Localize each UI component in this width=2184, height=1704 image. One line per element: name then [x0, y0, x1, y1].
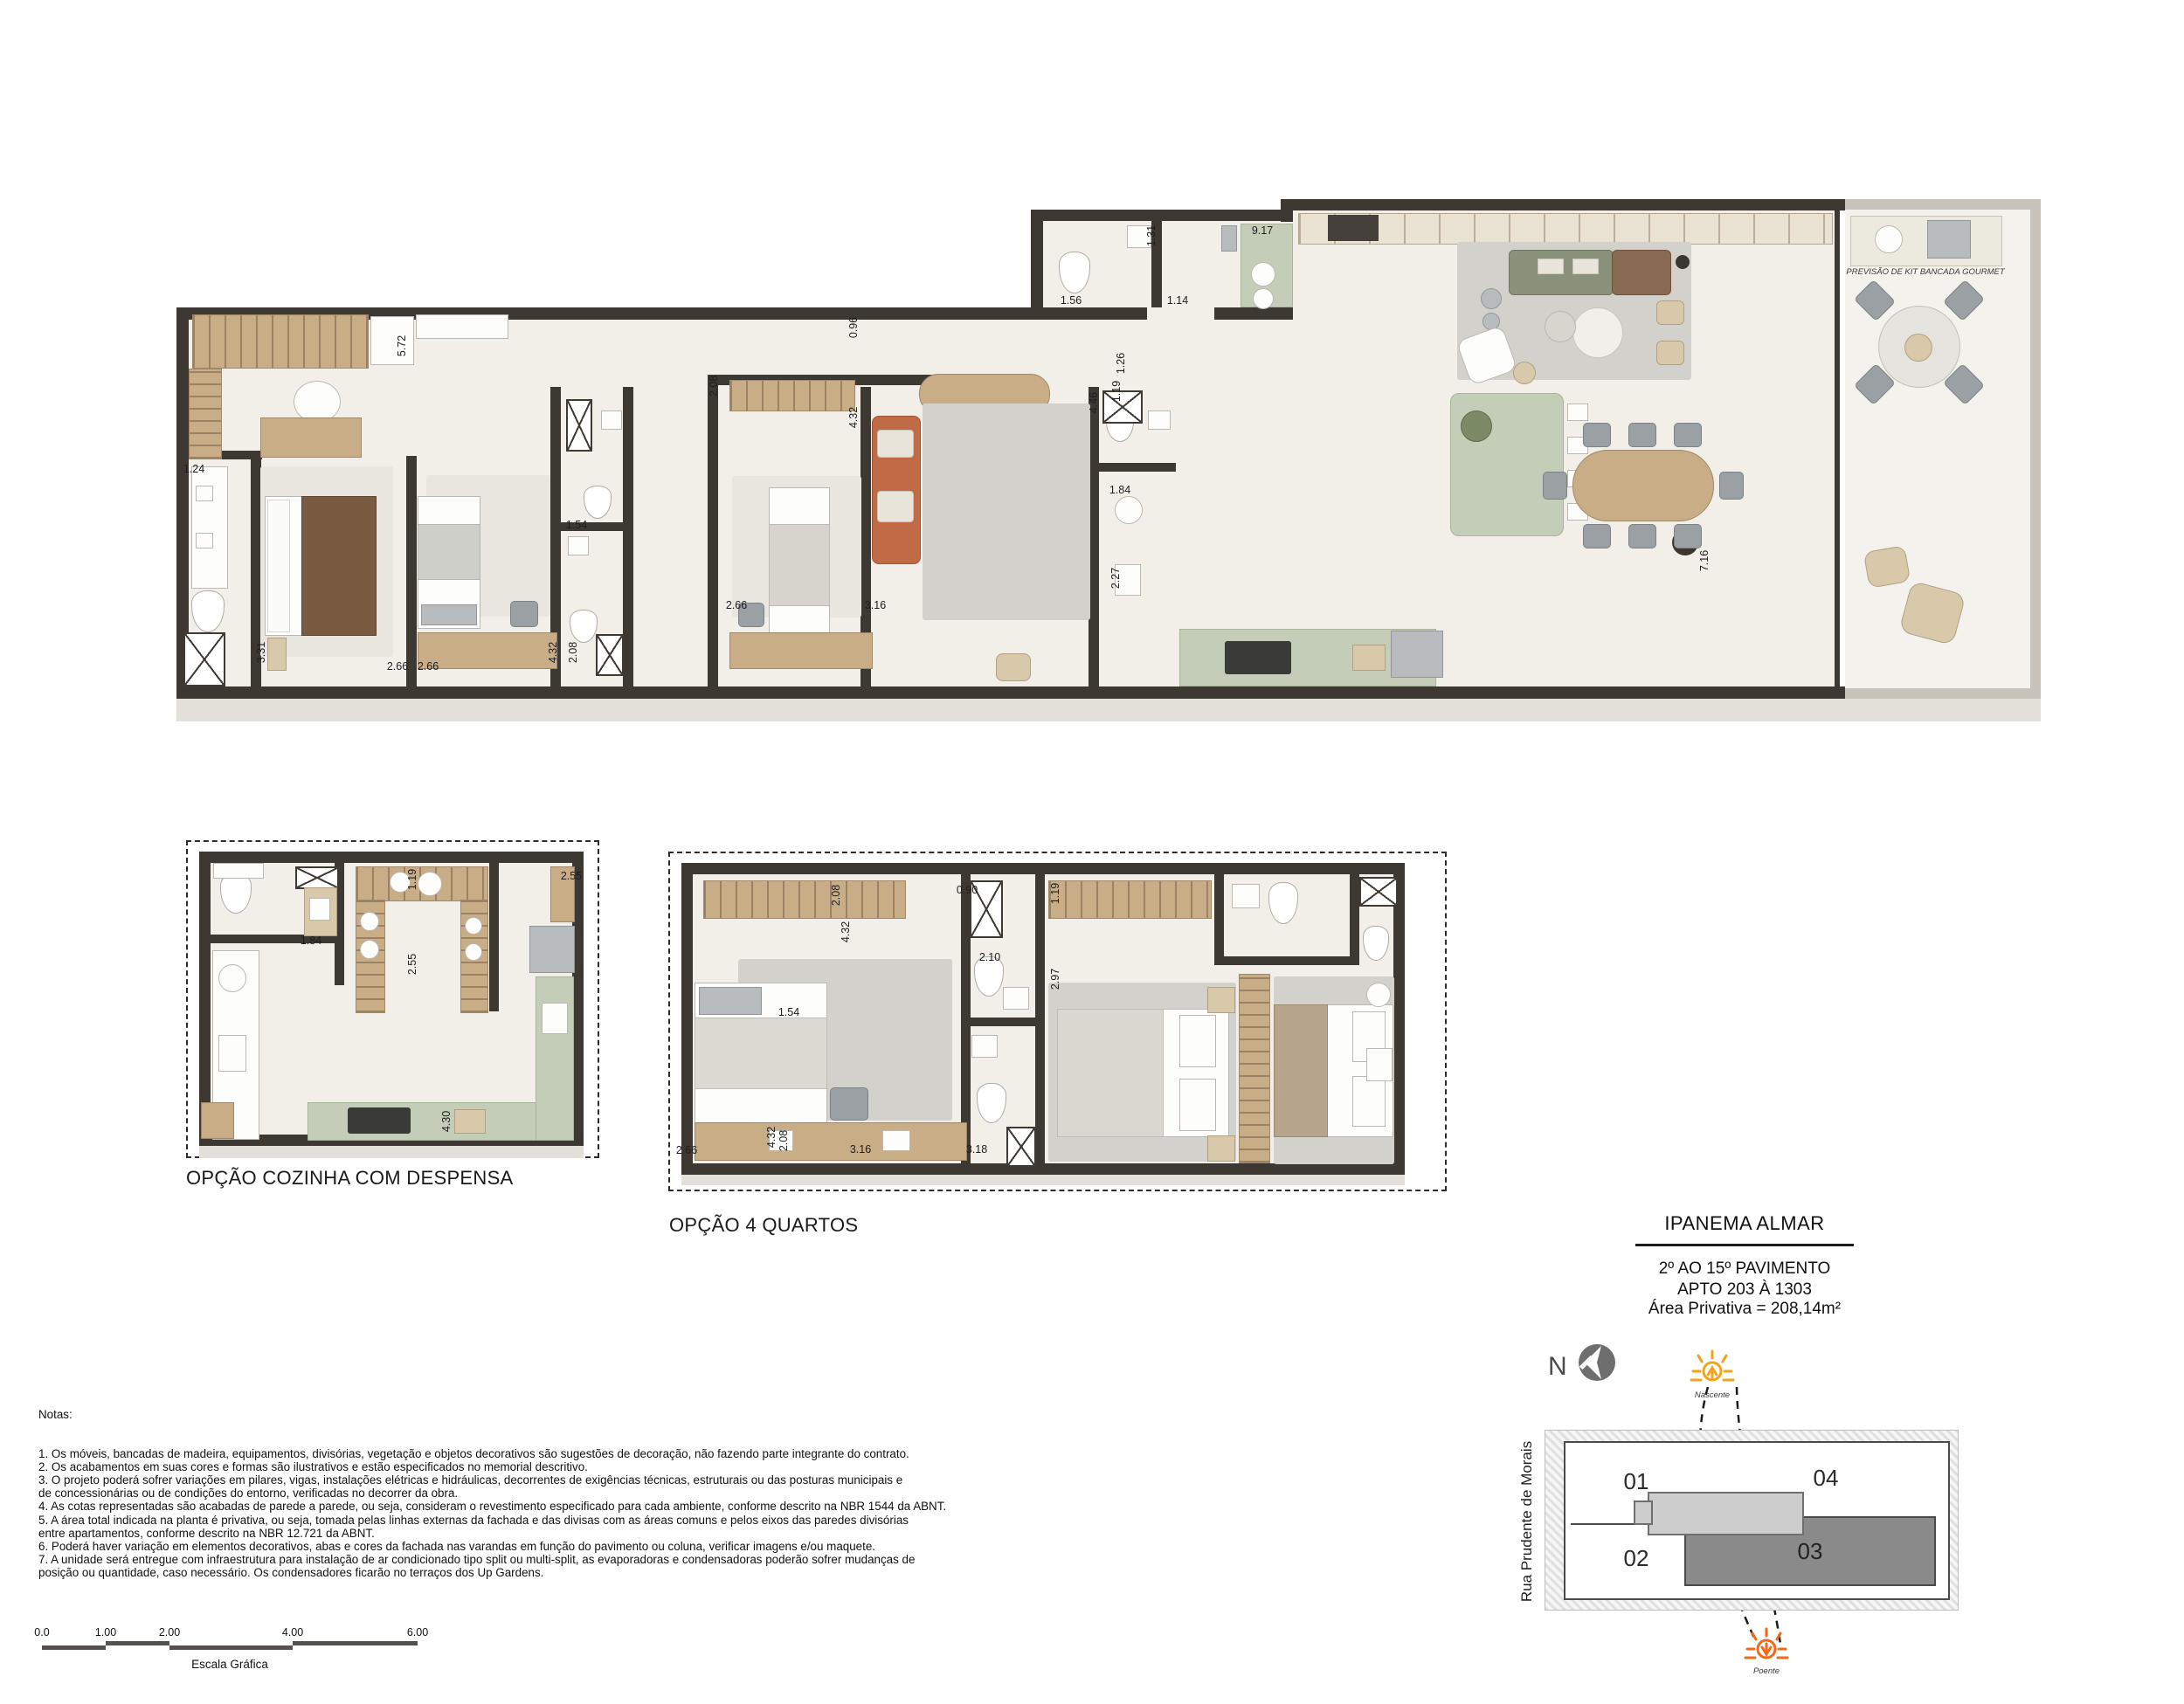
- sink: [309, 898, 330, 921]
- note-line: posição ou quantidade, caso necessário. …: [38, 1566, 946, 1579]
- dresser: [260, 417, 362, 458]
- street-label: Rua Prudente de Morais: [1518, 1441, 1536, 1602]
- scale-tick: 1.00: [95, 1626, 116, 1638]
- dining-chair: [1719, 472, 1744, 500]
- boiler: [1366, 983, 1391, 1007]
- dimension-label: 1.84: [1109, 485, 1130, 496]
- wall-suite3-left: [708, 375, 718, 686]
- note-line: 4. As cotas representadas são acabadas d…: [38, 1500, 946, 1513]
- terrace-table-tray: [1904, 334, 1932, 362]
- washer: [218, 964, 246, 992]
- title-underline: [1635, 1244, 1854, 1246]
- dimension-label: 2.08: [568, 642, 579, 663]
- wall-living-terrace-divider: [1835, 210, 1840, 686]
- plant: [1461, 410, 1492, 442]
- sofa-pillow: [877, 430, 914, 458]
- wall-step-service: [1031, 210, 1043, 320]
- cooktop: [1225, 641, 1291, 674]
- dimension-label: 9.17: [1252, 225, 1273, 237]
- title-area: Área Privativa = 208,14m²: [1648, 1300, 1841, 1319]
- rug: [923, 404, 1090, 620]
- bed-blanket: [695, 1018, 827, 1089]
- note-line: 2. Os acabamentos em suas cores e formas…: [38, 1460, 946, 1473]
- armchair: [830, 1087, 868, 1121]
- unit-03-label: 03: [1798, 1538, 1823, 1565]
- shower: [596, 634, 624, 676]
- scale-bar-segment: [169, 1645, 293, 1650]
- desk: [695, 1122, 967, 1161]
- dimension-label: 1.14: [1167, 295, 1188, 307]
- note-line: 1. Os móveis, bancadas de madeira, equip…: [38, 1447, 946, 1460]
- plan-ground-shadow: [681, 1175, 1405, 1185]
- sink: [568, 536, 589, 555]
- washer: [1115, 496, 1143, 524]
- wall: [1214, 874, 1224, 965]
- cabinet: [201, 1102, 234, 1139]
- dimension-label: 2.08: [778, 1130, 790, 1151]
- wardrobe: [189, 369, 222, 459]
- dimension-label: 2.10: [979, 952, 1000, 963]
- dimension-label: 2.27: [1110, 568, 1122, 589]
- scale-bar-segment: [293, 1641, 418, 1645]
- key-plan-core: [1648, 1492, 1804, 1535]
- north-label: N: [1548, 1352, 1567, 1382]
- wall: [1350, 874, 1359, 965]
- dining-chair: [1583, 524, 1611, 548]
- sink: [971, 1035, 998, 1058]
- jar: [418, 872, 442, 896]
- dimension-label: 1.31: [1146, 225, 1158, 246]
- dimension-label: 7.16: [1699, 550, 1711, 571]
- sunset-label: Poente: [1753, 1666, 1780, 1676]
- cooktop: [348, 1107, 411, 1134]
- closet: [729, 380, 855, 411]
- kitchen-counter: [536, 976, 574, 1141]
- scale-bar-segment: [42, 1645, 106, 1650]
- dimension-label: 2.97: [1050, 969, 1061, 990]
- bed-blanket: [418, 524, 480, 580]
- scale-tick: 6.00: [407, 1626, 428, 1638]
- terrace-wall-bottom: [1845, 688, 2041, 699]
- terrace-wall-top: [1845, 199, 2041, 210]
- sink: [1003, 987, 1029, 1010]
- dimension-label: 2.66: [387, 661, 408, 673]
- window-box: [213, 863, 264, 879]
- floor-lamp: [1676, 255, 1690, 269]
- vanity-double: [191, 466, 228, 589]
- grill: [1927, 220, 1971, 259]
- dimension-label: 2.66: [726, 600, 747, 611]
- note-line: de concessionárias ou de condições do en…: [38, 1487, 946, 1500]
- sofa-brown-chaise: [1612, 250, 1671, 295]
- dimension-label: 2.66: [418, 661, 439, 673]
- wall: [961, 1018, 1045, 1026]
- dimension-label: 0.90: [957, 885, 978, 896]
- sink: [601, 410, 622, 430]
- side-table: [1481, 288, 1502, 309]
- dimension-label: 4.30: [441, 1111, 453, 1132]
- cooktop-burner: [1251, 262, 1275, 286]
- scale-tick: 0.0: [34, 1626, 49, 1638]
- sink: [1148, 410, 1171, 430]
- dimension-label: 1.19: [1050, 883, 1061, 904]
- shaft: [1102, 390, 1143, 424]
- bed-blanket: [1274, 1004, 1328, 1137]
- wall-laundry-wc: [1099, 463, 1176, 472]
- option-kitchen-pantry-label: OPÇÃO COZINHA COM DESPENSA: [186, 1167, 514, 1190]
- cutting-board: [454, 1109, 486, 1134]
- notes-block: Notas: 1. Os móveis, bancadas de madeira…: [38, 1408, 946, 1579]
- wall-bottom: [176, 686, 1845, 699]
- bed-pillow: [1179, 1079, 1216, 1131]
- desk: [729, 632, 873, 669]
- oven: [529, 926, 575, 973]
- closet: [703, 880, 906, 919]
- dimension-label: 1.84: [301, 935, 321, 947]
- dimension-label: 1.19: [1111, 381, 1123, 402]
- unit-01-label: 01: [1624, 1468, 1649, 1495]
- wardrobe-divider: [1239, 974, 1270, 1163]
- wall-bathcore-hall: [623, 387, 633, 686]
- bed-pillow: [699, 987, 762, 1015]
- wall-top-service: [1031, 210, 1293, 221]
- shower: [1006, 1127, 1036, 1167]
- note-line: 7. A unidade será entregue com infraestr…: [38, 1553, 946, 1566]
- scale-caption: Escala Gráfica: [191, 1658, 268, 1671]
- dimension-label: 3.31: [256, 642, 267, 663]
- key-plan-core-tab: [1634, 1500, 1653, 1525]
- jar: [465, 917, 482, 935]
- dimension-label: 4.46: [1089, 392, 1100, 413]
- armchair: [294, 381, 341, 423]
- cutting-board: [1352, 645, 1386, 671]
- scale-bar-segment: [106, 1641, 169, 1645]
- dimension-label: 1.56: [1061, 295, 1082, 307]
- closet-boxes: [416, 314, 508, 339]
- shower: [566, 399, 592, 452]
- dimension-label: 2.66: [676, 1145, 697, 1156]
- dimension-label: 2.08: [831, 885, 842, 906]
- dining-chair: [1628, 423, 1656, 447]
- desk-items: [882, 1130, 910, 1151]
- bed-pillows: [267, 500, 290, 632]
- dimension-label: 3.16: [865, 600, 886, 611]
- dimension-label: 5.72: [397, 335, 408, 356]
- title-units: APTO 203 À 1303: [1677, 1280, 1812, 1300]
- wall-service-bottom-a: [1042, 307, 1147, 320]
- laundry-tub: [1366, 1048, 1393, 1081]
- pouf: [1656, 300, 1684, 325]
- shower: [295, 866, 339, 889]
- notes-heading: Notas:: [38, 1408, 946, 1421]
- dimension-label: 0.96: [848, 317, 860, 338]
- scale-tick: 4.00: [282, 1626, 303, 1638]
- dining-chair: [1543, 472, 1567, 500]
- dimension-label: 2.55: [407, 954, 418, 975]
- oven: [1391, 631, 1443, 678]
- dimension-label: 4.32: [548, 642, 559, 663]
- dimension-label: 4.32: [840, 921, 852, 942]
- unit-04-label: 04: [1814, 1465, 1839, 1492]
- gourmet-sink: [1875, 225, 1903, 253]
- coffee-table: [1572, 307, 1623, 358]
- dimension-label: 1.26: [1116, 353, 1127, 374]
- stool: [1567, 404, 1588, 421]
- dimension-label: 3.18: [966, 1144, 987, 1156]
- dining-chair: [1628, 524, 1656, 548]
- side-table: [1513, 362, 1536, 384]
- closet: [1048, 880, 1212, 919]
- pouf: [1656, 341, 1684, 365]
- dimension-label: 1.19: [407, 869, 418, 890]
- pouf: [996, 653, 1031, 681]
- shaft: [1359, 877, 1398, 907]
- jar: [360, 940, 379, 959]
- wall-service-bottom-b: [1214, 307, 1293, 320]
- sink: [196, 486, 213, 501]
- jar: [360, 912, 379, 931]
- note-line: entre apartamentos, conforme descrito na…: [38, 1527, 946, 1540]
- sunset-icon: [1744, 1626, 1789, 1666]
- cooktop-burner: [1253, 288, 1274, 309]
- laundry-sink: [218, 1035, 246, 1072]
- floor-plan-sheet: PREVISÃO DE KIT BANCADA GOURMET: [0, 0, 2184, 1704]
- dining-chair: [1674, 423, 1702, 447]
- nightstand: [1207, 1135, 1235, 1162]
- plan-ground-shadow: [176, 699, 2041, 721]
- note-line: 3. O projeto poderá sofrer variações em …: [38, 1473, 946, 1487]
- bed-pillow: [421, 604, 477, 625]
- plan-ground-shadow: [199, 1146, 584, 1158]
- shower: [183, 632, 225, 686]
- bottle: [1221, 225, 1237, 252]
- scale-tick: 2.00: [159, 1626, 180, 1638]
- sink: [1232, 884, 1260, 908]
- wine-rack: [1328, 215, 1379, 241]
- bed-pillow: [1352, 1076, 1386, 1127]
- bed-blanket: [1057, 1009, 1164, 1137]
- sink: [196, 533, 213, 548]
- dimension-label: 1.54: [566, 520, 587, 531]
- sofa-cushion: [1538, 259, 1564, 274]
- unit-02-label: 02: [1624, 1545, 1649, 1572]
- dimension-label: 2.08: [708, 376, 720, 397]
- sofa-pillow: [877, 491, 914, 522]
- sofa-cushion: [1572, 259, 1599, 274]
- option-four-bedrooms-label: OPÇÃO 4 QUARTOS: [669, 1214, 858, 1237]
- wardrobe: [192, 314, 369, 369]
- dimension-label: 1.54: [778, 1007, 799, 1018]
- project-title: IPANEMA ALMAR: [1664, 1212, 1824, 1235]
- dining-chair: [1674, 524, 1702, 548]
- bed-pillow: [1179, 1015, 1216, 1067]
- dimension-label: 4.32: [766, 1127, 778, 1148]
- bed-blanket: [769, 524, 830, 606]
- gourmet-counter: [1850, 216, 2002, 266]
- note-line: 5. A área total indicada na planta é pri…: [38, 1514, 946, 1527]
- note-line: 6. Poderá haver variação em elementos de…: [38, 1540, 946, 1553]
- dimension-label: 4.32: [848, 407, 860, 428]
- coffee-table: [1545, 311, 1576, 342]
- dining-chair: [1583, 423, 1611, 447]
- wall: [489, 863, 499, 1011]
- gourmet-note: PREVISÃO DE KIT BANCADA GOURMET: [1846, 267, 2004, 277]
- dimension-label: 3.16: [850, 1144, 871, 1156]
- bench: [267, 638, 287, 671]
- dimension-label: 2.55: [561, 871, 582, 882]
- wall-top-living: [1281, 199, 1845, 210]
- dining-table: [1572, 450, 1714, 521]
- wall-suite1-suite2: [406, 456, 417, 686]
- jar: [465, 943, 482, 961]
- bed-blanket: [301, 496, 377, 636]
- sink: [542, 1003, 568, 1034]
- dimension-label: 1.24: [183, 464, 204, 475]
- wall: [1214, 956, 1358, 965]
- lounge-pouf: [1863, 545, 1911, 589]
- sunrise-icon: [1690, 1349, 1735, 1389]
- terrace-wall-right: [2030, 199, 2041, 699]
- desk-chair: [510, 601, 538, 627]
- nightstand: [1207, 987, 1235, 1013]
- title-floors: 2º AO 15º PAVIMENTO: [1659, 1259, 1831, 1279]
- compass-icon: [1574, 1340, 1620, 1385]
